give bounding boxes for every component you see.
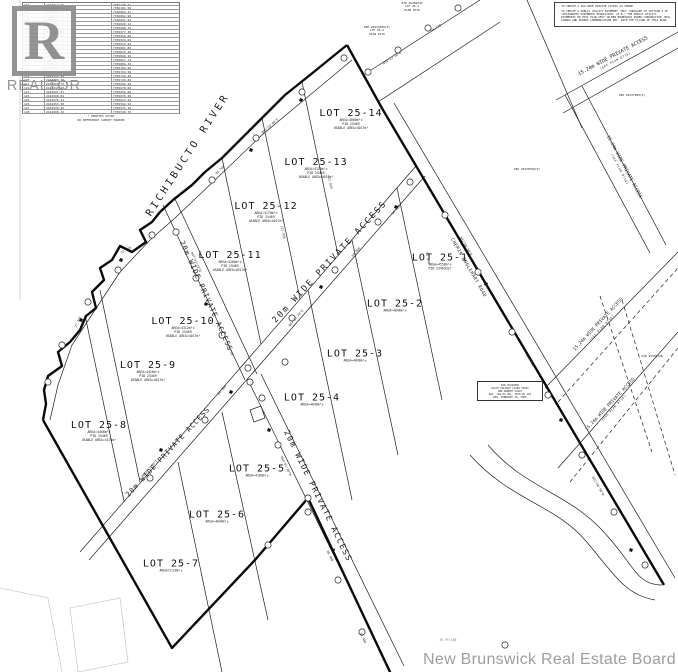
subdivision-plan: 1012443512.667356128.311022443498.127356…: [0, 0, 678, 672]
bearing-annotation: N42°17'40"E: [142, 459, 159, 478]
bearing-annotation: 30.480: [391, 204, 402, 215]
bearing-annotation: N51°33'40"E: [261, 117, 279, 134]
bearing-annotation: 60.960: [217, 384, 228, 395]
bearing-annotation: 45.720: [430, 23, 442, 33]
bearing-annotation: JR PFLSNE: [439, 638, 456, 642]
bearing-annotation: 121.920: [327, 175, 334, 189]
bearing-annotation: 27.432: [74, 316, 82, 328]
bearing-annotation: 121.920: [525, 353, 535, 367]
bearing-annotation: N47°42'20"W: [190, 252, 202, 273]
bearing-annotation: N32°40'50"W: [591, 476, 605, 496]
bearing-annotation: N42°17'40"E: [288, 309, 305, 328]
bearing-annotation: N56°22'10"E: [382, 51, 402, 66]
bearing-annotation: 45.720: [226, 344, 234, 356]
bearing-annotations-layer: N42°17'40"E60.960N42°17'40"E60.96030.480…: [0, 0, 678, 672]
bearing-annotation: 30.480: [359, 632, 368, 644]
bearing-annotation: N44°02'30"W: [280, 456, 293, 477]
bearing-annotation: 91.440: [425, 252, 431, 264]
bearing-annotation: 48.768: [214, 165, 225, 176]
bearing-annotation: N32°40'50"W: [459, 236, 473, 256]
bearing-annotation: 60.960: [351, 246, 362, 257]
bearing-annotation: 60.960: [326, 550, 335, 562]
board-watermark: New Brunswick Real Estate Board: [423, 651, 676, 669]
bearing-annotation: 121.920: [280, 225, 287, 239]
bearing-annotation: 32.004: [120, 245, 132, 254]
